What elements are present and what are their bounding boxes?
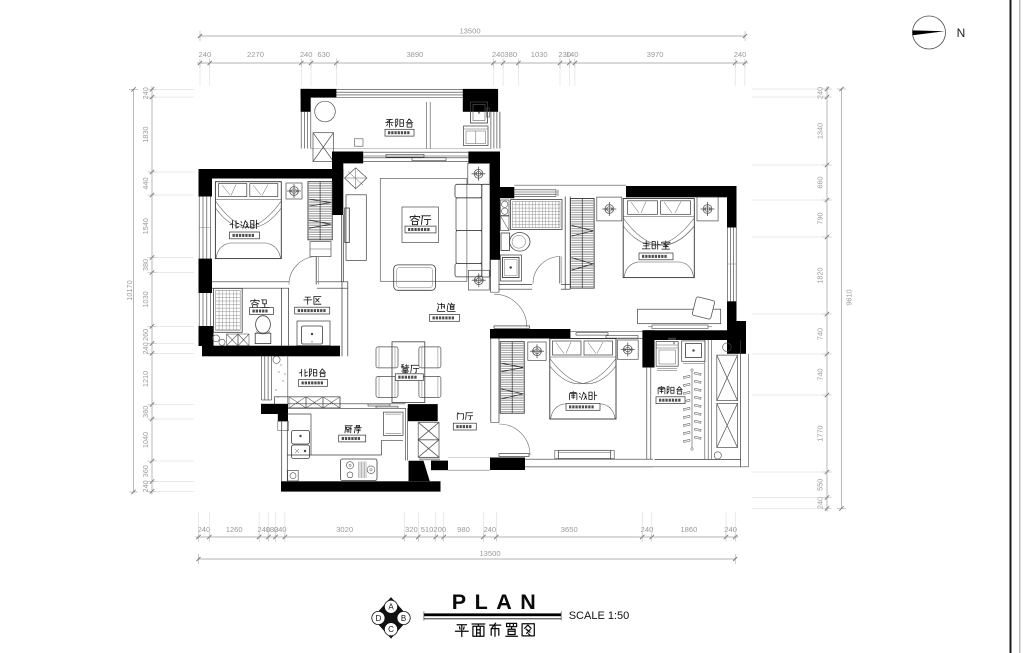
svg-text:1260: 1260 (226, 525, 243, 534)
svg-text:1540: 1540 (141, 218, 150, 234)
svg-text:PLAN: PLAN (452, 590, 545, 614)
svg-text:240: 240 (300, 50, 313, 59)
svg-text:13500: 13500 (479, 549, 500, 558)
svg-text:1860: 1860 (680, 525, 697, 534)
svg-text:1210: 1210 (141, 371, 150, 387)
svg-text:B: B (401, 614, 406, 623)
svg-text:360: 360 (141, 406, 150, 418)
svg-text:10170: 10170 (125, 280, 134, 300)
svg-text:740: 740 (816, 368, 825, 380)
svg-text:240: 240 (734, 50, 747, 59)
svg-text:240: 240 (816, 497, 825, 509)
svg-text:980: 980 (457, 525, 470, 534)
svg-text:740: 740 (816, 328, 825, 340)
svg-text:1820: 1820 (816, 267, 825, 283)
svg-text:660: 660 (816, 176, 825, 188)
svg-text:240: 240 (199, 50, 212, 59)
svg-text:260: 260 (141, 329, 150, 341)
svg-text:1040: 1040 (141, 432, 150, 448)
svg-text:3890: 3890 (406, 50, 423, 59)
svg-text:550: 550 (816, 479, 825, 491)
svg-text:240: 240 (141, 480, 150, 492)
svg-text:240: 240 (198, 525, 211, 534)
svg-text:240: 240 (641, 525, 654, 534)
svg-text:380: 380 (504, 50, 517, 59)
svg-text:3650: 3650 (561, 525, 578, 534)
svg-text:1340: 1340 (816, 123, 825, 139)
svg-text:240: 240 (483, 525, 496, 534)
svg-text:320: 320 (405, 525, 418, 534)
svg-text:360: 360 (141, 465, 150, 477)
svg-text:2270: 2270 (247, 50, 264, 59)
svg-text:SCALE 1:50: SCALE 1:50 (569, 610, 630, 622)
svg-text:3020: 3020 (336, 525, 353, 534)
svg-text:240: 240 (274, 525, 287, 534)
svg-text:3970: 3970 (647, 50, 664, 59)
svg-text:A: A (388, 603, 394, 612)
svg-text:1830: 1830 (141, 126, 150, 142)
svg-text:N: N (957, 26, 966, 40)
svg-text:D: D (376, 614, 382, 623)
svg-text:C: C (388, 625, 394, 634)
svg-text:13500: 13500 (459, 27, 480, 36)
svg-text:200: 200 (433, 525, 446, 534)
svg-text:240: 240 (816, 87, 825, 99)
svg-text:1770: 1770 (816, 425, 825, 441)
svg-text:790: 790 (816, 212, 825, 224)
svg-text:240: 240 (492, 50, 505, 59)
svg-text:1030: 1030 (531, 50, 548, 59)
svg-text:240: 240 (141, 87, 150, 99)
svg-text:510: 510 (421, 525, 434, 534)
svg-text:380: 380 (141, 259, 150, 271)
svg-text:440: 440 (141, 177, 150, 189)
svg-text:140: 140 (566, 50, 579, 59)
svg-text:240: 240 (141, 342, 150, 354)
svg-text:630: 630 (317, 50, 330, 59)
svg-text:1030: 1030 (141, 291, 150, 307)
svg-text:9610: 9610 (845, 289, 854, 305)
